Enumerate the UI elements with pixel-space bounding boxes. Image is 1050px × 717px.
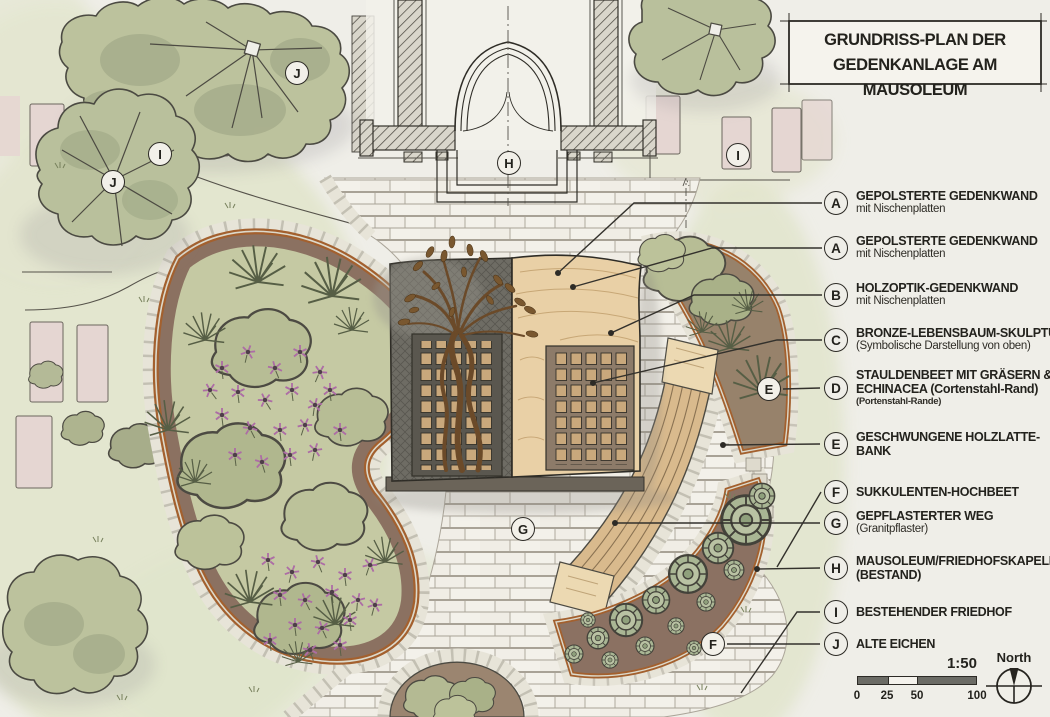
plan-title-line2: GEDENKANLAGE AM MAUSOLEUM	[789, 53, 1041, 103]
legend-key-c: C	[824, 328, 848, 352]
legend-item: STAULDENBEET MIT GRÄSERN & ECHINACEA (Co…	[856, 368, 1048, 407]
legend-key-d: D	[824, 376, 848, 400]
plan-badge-i-1: I	[148, 142, 172, 166]
plan-badge-j-2: J	[101, 170, 125, 194]
scale-bar-graphic	[857, 676, 977, 685]
scale-tick-25: 25	[872, 690, 902, 702]
scale-seg-light	[888, 677, 918, 684]
legend-item: BESTEHENDER FRIEDHOF	[856, 605, 1048, 619]
legend-item: GEPOLSTERTE GEDENKWAND mit Nischenplatte…	[856, 234, 1048, 261]
legend-key-a1: A	[824, 191, 848, 215]
plan-badge-e: E	[757, 377, 781, 401]
scale-tick-100: 100	[962, 690, 992, 702]
plan-badge-i-2: I	[726, 143, 750, 167]
legend-key-i: I	[824, 600, 848, 624]
legend-key-f: F	[824, 480, 848, 504]
scale-tick-0: 0	[842, 690, 872, 702]
legend-item: SUKKULENTEN-HOCHBEET	[856, 485, 1048, 499]
legend-item: ALTE EICHEN	[856, 637, 1048, 651]
scale-seg-dark1	[858, 677, 888, 684]
legend-key-e: E	[824, 432, 848, 456]
plan-badge-j-1: J	[285, 61, 309, 85]
legend-item: MAUSOLEUM/FRIEDHOFSKAPELLE (BESTAND)	[856, 554, 1048, 582]
legend-key-g: G	[824, 511, 848, 535]
legend-key-a2: A	[824, 236, 848, 260]
plan-badge-f: F	[701, 632, 725, 656]
scale-seg-dark2	[918, 677, 976, 684]
memorial-site-plan: GRUNDRISS-PLAN DER GEDENKANLAGE AM MAUSO…	[0, 0, 1050, 717]
legend-item: BRONZE-LEBENSBAUM-SKULPTUR (Symbolische …	[856, 326, 1048, 353]
plan-badge-h: H	[497, 151, 521, 175]
legend-key-b: B	[824, 283, 848, 307]
legend-key-h: H	[824, 556, 848, 580]
scale-tick-50: 50	[902, 690, 932, 702]
legend-item: GEPOLSTERTE GEDENKWAND mit Nischenplatte…	[856, 189, 1048, 216]
plan-title: GRUNDRISS-PLAN DER GEDENKANLAGE AM MAUSO…	[789, 28, 1041, 103]
legend-item: GEPFLASTERTER WEG (Granitpflaster)	[856, 509, 1048, 536]
legend-item: HOLZOPTIK-GEDENKWAND mit Nischenplatten	[856, 281, 1048, 308]
north-label: North	[989, 650, 1039, 665]
legend-item: GESCHWUNGENE HOLZLATTE- BANK	[856, 430, 1048, 458]
plan-title-line1: GRUNDRISS-PLAN DER	[789, 28, 1041, 53]
scale-ratio: 1:50	[917, 655, 977, 672]
legend-key-j: J	[824, 632, 848, 656]
plan-badge-g: G	[511, 517, 535, 541]
